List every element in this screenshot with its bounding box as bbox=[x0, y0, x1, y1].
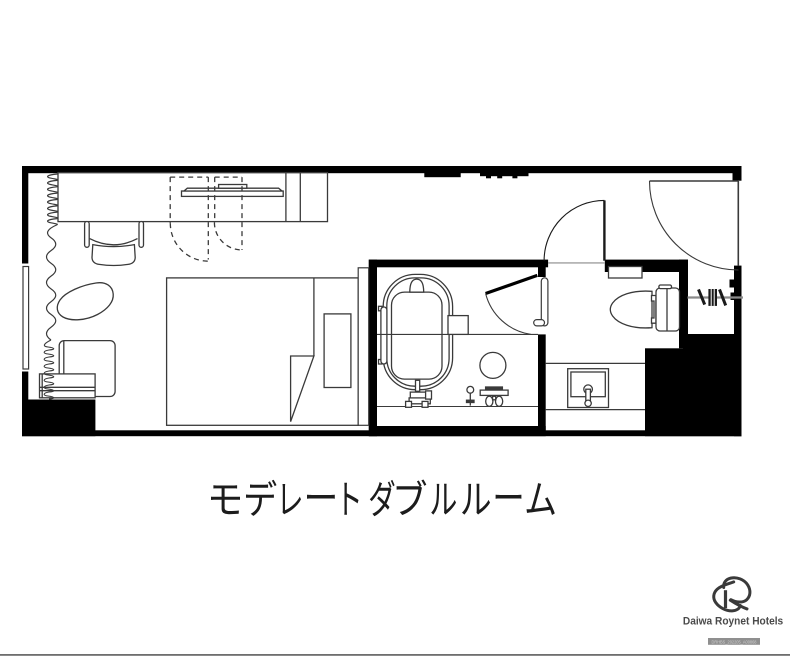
svg-text:Daiwa Roynet Hotels: Daiwa Roynet Hotels bbox=[683, 616, 783, 628]
svg-text:DRHBS_202205_A00868: DRHBS_202205_A00868 bbox=[712, 639, 757, 645]
